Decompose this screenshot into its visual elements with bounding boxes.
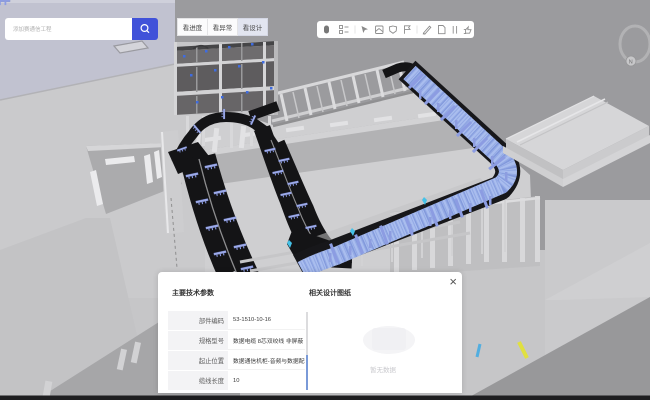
svg-text:N: N — [629, 60, 633, 66]
